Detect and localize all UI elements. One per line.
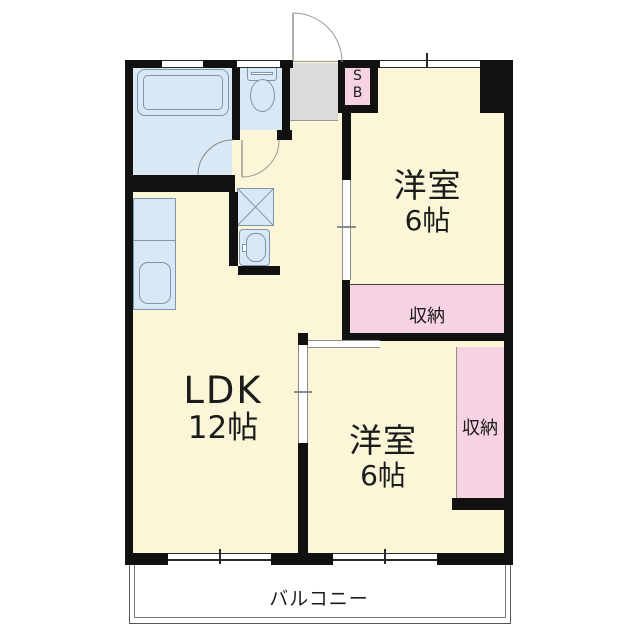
room-size: 12帖 [133, 411, 313, 446]
bathroom-door-arc-icon [198, 140, 233, 175]
toilet-door-arc-icon [242, 140, 279, 177]
room-label-western-bottom: 洋室 6帖 [308, 423, 458, 491]
room-label-western-top: 洋室 6帖 [351, 168, 504, 236]
room-size: 6帖 [308, 460, 458, 491]
floor-plan: 洋室 6帖 収納 洋室 6帖 収納 LDK 12帖 バルコニー S B [0, 0, 640, 640]
door-arcs-layer [0, 0, 640, 640]
entrance-door-arc-icon [293, 13, 342, 62]
shoe-box-letter-b: B [345, 85, 370, 102]
room-name: 洋室 [308, 423, 458, 460]
room-label-ldk: LDK 12帖 [133, 370, 313, 446]
balcony-label: バルコニー [125, 589, 513, 610]
storage-top-label: 収納 [350, 307, 504, 327]
storage-right-label: 収納 [456, 419, 504, 439]
room-size: 6帖 [351, 205, 504, 236]
room-name: 洋室 [351, 168, 504, 205]
room-name: LDK [133, 370, 313, 411]
shoe-box-letter-s: S [345, 68, 370, 85]
shoe-box-label: S B [345, 68, 370, 102]
